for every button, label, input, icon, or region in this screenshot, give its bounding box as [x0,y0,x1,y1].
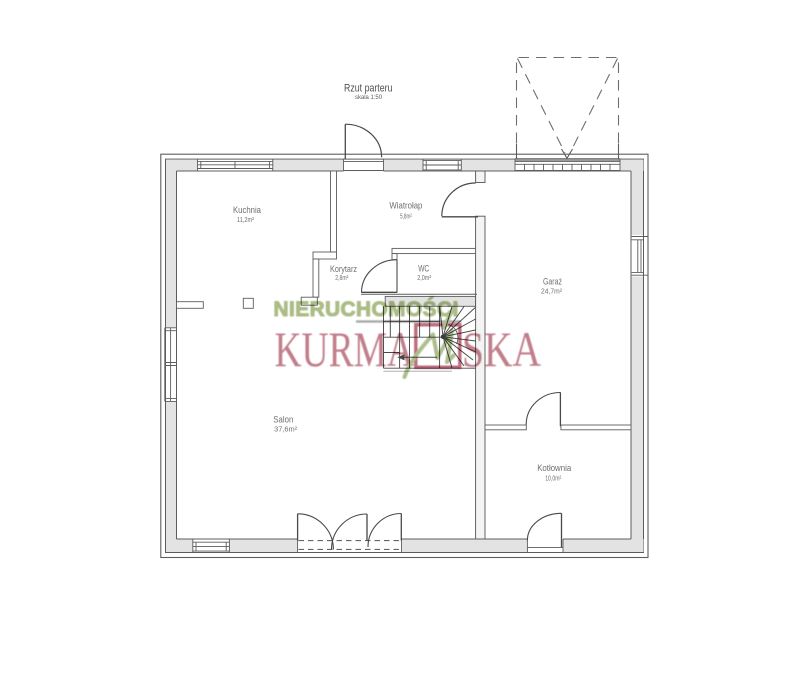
svg-text:Rzut parteru: Rzut parteru [344,83,393,95]
svg-text:WC: WC [418,263,429,273]
svg-text:SKA: SKA [462,321,541,377]
svg-text:11,2m²: 11,2m² [237,217,255,224]
svg-text:Korytarz: Korytarz [330,264,357,274]
svg-text:NIERUCHOMOŚCI: NIERUCHOMOŚCI [274,297,459,321]
svg-text:KURMA: KURMA [275,321,415,377]
svg-text:Garaż: Garaż [543,276,562,286]
svg-text:5,8m²: 5,8m² [400,213,412,220]
svg-text:skala 1:50: skala 1:50 [355,94,382,101]
svg-text:2,8m²: 2,8m² [335,275,348,282]
svg-text:Salon: Salon [273,414,293,425]
svg-text:Kuchnia: Kuchnia [233,205,261,215]
svg-text:2,0m²: 2,0m² [417,275,432,282]
svg-text:37,6m²: 37,6m² [274,427,298,434]
svg-text:10,0m²: 10,0m² [545,476,561,483]
svg-text:Kotłownia: Kotłownia [537,463,571,473]
svg-text:24,7m²: 24,7m² [541,288,563,295]
svg-text:Wiatrołap: Wiatrołap [389,200,422,210]
